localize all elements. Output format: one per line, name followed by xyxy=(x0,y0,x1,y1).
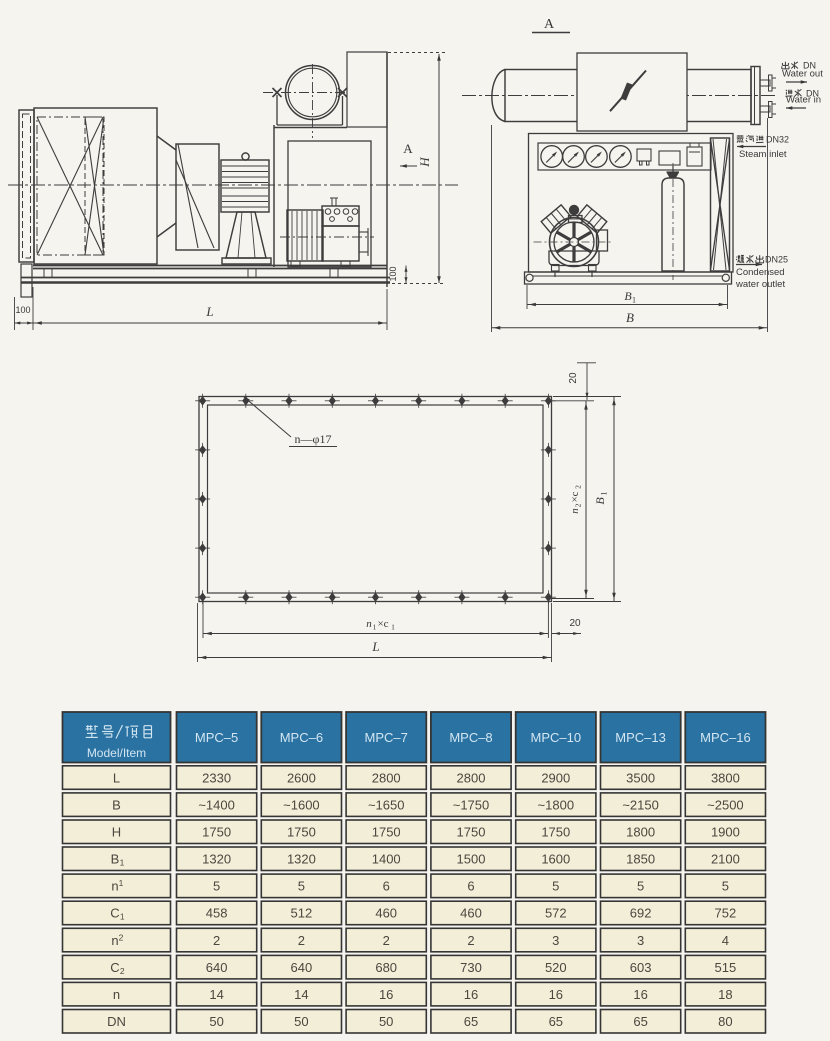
svg-text:460: 460 xyxy=(460,906,482,921)
svg-text:80: 80 xyxy=(718,1014,732,1029)
svg-text:MPC–13: MPC–13 xyxy=(615,730,666,745)
svg-text:~2500: ~2500 xyxy=(707,797,744,812)
svg-text:3: 3 xyxy=(552,933,559,948)
svg-text:n: n xyxy=(111,879,118,894)
svg-text:18: 18 xyxy=(718,987,732,1002)
svg-text:n—φ17: n—φ17 xyxy=(295,432,332,446)
svg-text:n: n xyxy=(569,508,581,514)
svg-text:1: 1 xyxy=(373,623,377,632)
svg-text:640: 640 xyxy=(206,960,228,975)
svg-text:1320: 1320 xyxy=(287,852,316,867)
svg-text:730: 730 xyxy=(460,960,482,975)
svg-text:1800: 1800 xyxy=(626,825,655,840)
svg-text:~1600: ~1600 xyxy=(283,797,320,812)
svg-text:1750: 1750 xyxy=(372,825,401,840)
svg-text:MPC–16: MPC–16 xyxy=(700,730,751,745)
svg-text:×c: ×c xyxy=(569,491,581,502)
svg-text:DN: DN xyxy=(107,1014,126,1029)
svg-text:20: 20 xyxy=(569,618,581,629)
svg-text:n: n xyxy=(113,987,120,1002)
svg-text:572: 572 xyxy=(545,906,567,921)
svg-text:100: 100 xyxy=(15,305,30,315)
svg-text:1400: 1400 xyxy=(372,852,401,867)
svg-text:~2150: ~2150 xyxy=(622,797,659,812)
svg-text:1750: 1750 xyxy=(541,825,570,840)
svg-text:1: 1 xyxy=(391,623,395,632)
svg-text:~1650: ~1650 xyxy=(368,797,405,812)
svg-text:2600: 2600 xyxy=(287,770,316,785)
svg-text:Water in: Water in xyxy=(786,95,821,106)
svg-text:1850: 1850 xyxy=(626,852,655,867)
svg-text:512: 512 xyxy=(291,906,313,921)
svg-text:n: n xyxy=(111,933,118,948)
svg-text:2800: 2800 xyxy=(372,770,401,785)
svg-text:~1750: ~1750 xyxy=(453,797,490,812)
svg-text:3800: 3800 xyxy=(711,770,740,785)
svg-text:H: H xyxy=(417,157,432,168)
svg-text:1320: 1320 xyxy=(202,852,231,867)
svg-text:DN32: DN32 xyxy=(766,135,789,145)
svg-text:2900: 2900 xyxy=(541,770,570,785)
svg-text:1: 1 xyxy=(632,296,636,305)
svg-text:458: 458 xyxy=(206,906,228,921)
svg-text:2330: 2330 xyxy=(202,770,231,785)
svg-text:65: 65 xyxy=(633,1014,647,1029)
svg-text:L: L xyxy=(205,304,213,319)
svg-text:B: B xyxy=(593,497,607,505)
svg-text:50: 50 xyxy=(294,1014,308,1029)
svg-text:A: A xyxy=(403,141,413,156)
svg-text:680: 680 xyxy=(375,960,397,975)
svg-text:Model/Item: Model/Item xyxy=(87,746,146,760)
svg-text:14: 14 xyxy=(294,987,308,1002)
svg-text:B: B xyxy=(111,852,120,867)
svg-text:L: L xyxy=(371,639,379,654)
svg-text:2800: 2800 xyxy=(457,770,486,785)
svg-text:100: 100 xyxy=(388,266,398,281)
svg-text:C: C xyxy=(110,906,119,921)
svg-text:14: 14 xyxy=(209,987,223,1002)
svg-text:B: B xyxy=(626,310,634,325)
svg-text:5: 5 xyxy=(298,879,305,894)
svg-text:1900: 1900 xyxy=(711,825,740,840)
svg-text:~1800: ~1800 xyxy=(538,797,575,812)
svg-text:16: 16 xyxy=(464,987,478,1002)
svg-text:1500: 1500 xyxy=(457,852,486,867)
svg-text:MPC–8: MPC–8 xyxy=(449,730,492,745)
svg-text:2: 2 xyxy=(467,933,474,948)
svg-text:~1400: ~1400 xyxy=(198,797,235,812)
svg-text:Steam inlet: Steam inlet xyxy=(739,149,787,160)
svg-text:3500: 3500 xyxy=(626,770,655,785)
svg-text:C: C xyxy=(110,960,119,975)
svg-text:1600: 1600 xyxy=(541,852,570,867)
svg-text:5: 5 xyxy=(722,879,729,894)
svg-text:692: 692 xyxy=(630,906,652,921)
svg-text:L: L xyxy=(113,770,120,785)
svg-text:DN25: DN25 xyxy=(765,255,788,265)
svg-text:MPC–6: MPC–6 xyxy=(280,730,323,745)
svg-text:1: 1 xyxy=(119,878,124,888)
svg-text:MPC–10: MPC–10 xyxy=(531,730,582,745)
svg-text:2: 2 xyxy=(119,932,124,942)
svg-text:B: B xyxy=(112,797,121,812)
svg-text:MPC–5: MPC–5 xyxy=(195,730,238,745)
svg-text:50: 50 xyxy=(379,1014,393,1029)
svg-text:640: 640 xyxy=(291,960,313,975)
svg-text:5: 5 xyxy=(552,879,559,894)
svg-text:520: 520 xyxy=(545,960,567,975)
svg-text:Water out: Water out xyxy=(782,69,823,80)
svg-text:16: 16 xyxy=(379,987,393,1002)
svg-text:65: 65 xyxy=(464,1014,478,1029)
svg-text:2: 2 xyxy=(120,966,125,976)
svg-text:H: H xyxy=(112,825,121,840)
svg-text:MPC–7: MPC–7 xyxy=(365,730,408,745)
svg-text:5: 5 xyxy=(637,879,644,894)
svg-text:×c: ×c xyxy=(377,618,388,630)
svg-text:2: 2 xyxy=(574,485,583,489)
svg-text:16: 16 xyxy=(633,987,647,1002)
svg-text:20: 20 xyxy=(568,372,579,384)
svg-text:5: 5 xyxy=(213,879,220,894)
svg-text:A: A xyxy=(544,17,555,32)
svg-text:2: 2 xyxy=(213,933,220,948)
svg-text:752: 752 xyxy=(715,906,737,921)
svg-text:1750: 1750 xyxy=(287,825,316,840)
svg-text:n: n xyxy=(366,618,372,630)
svg-text:Condensed: Condensed xyxy=(736,267,785,278)
svg-text:2: 2 xyxy=(298,933,305,948)
svg-text:1: 1 xyxy=(120,858,125,868)
svg-text:3: 3 xyxy=(637,933,644,948)
svg-text:16: 16 xyxy=(549,987,563,1002)
svg-text:460: 460 xyxy=(375,906,397,921)
svg-text:6: 6 xyxy=(383,879,390,894)
svg-text:603: 603 xyxy=(630,960,652,975)
svg-text:1750: 1750 xyxy=(457,825,486,840)
svg-text:1: 1 xyxy=(600,492,609,496)
svg-text:515: 515 xyxy=(715,960,737,975)
svg-text:2100: 2100 xyxy=(711,852,740,867)
svg-text:1: 1 xyxy=(120,912,125,922)
svg-text:50: 50 xyxy=(209,1014,223,1029)
svg-text:2: 2 xyxy=(574,503,583,507)
svg-text:water outlet: water outlet xyxy=(735,279,785,290)
svg-text:6: 6 xyxy=(467,879,474,894)
svg-text:1750: 1750 xyxy=(202,825,231,840)
svg-text:2: 2 xyxy=(383,933,390,948)
svg-text:4: 4 xyxy=(722,933,729,948)
svg-text:65: 65 xyxy=(549,1014,563,1029)
